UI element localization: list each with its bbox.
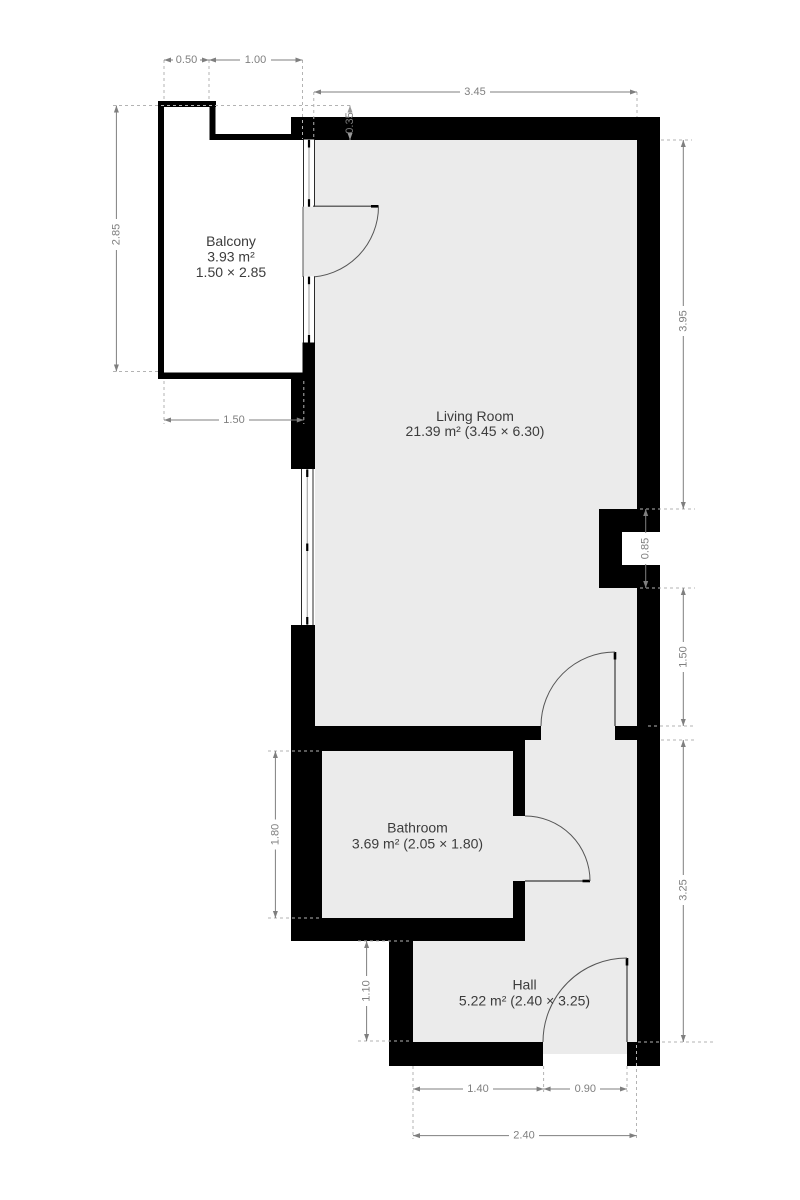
svg-text:2.40: 2.40 xyxy=(513,1130,534,1142)
svg-text:1.80: 1.80 xyxy=(269,824,281,845)
svg-text:1.50 × 2.85: 1.50 × 2.85 xyxy=(196,264,267,280)
svg-text:21.39 m² (3.45 × 6.30): 21.39 m² (3.45 × 6.30) xyxy=(406,423,545,439)
svg-text:3.69 m² (2.05 × 1.80): 3.69 m² (2.05 × 1.80) xyxy=(352,836,483,852)
svg-text:1.10: 1.10 xyxy=(361,980,373,1001)
svg-text:0.35: 0.35 xyxy=(344,112,356,133)
svg-text:3.93 m²: 3.93 m² xyxy=(207,249,255,265)
svg-text:0.90: 0.90 xyxy=(575,1083,596,1095)
svg-text:1.40: 1.40 xyxy=(467,1083,488,1095)
svg-text:2.85: 2.85 xyxy=(110,224,122,245)
svg-text:3.95: 3.95 xyxy=(677,310,689,331)
svg-text:1.50: 1.50 xyxy=(677,646,689,667)
svg-text:5.22 m² (2.40 × 3.25): 5.22 m² (2.40 × 3.25) xyxy=(459,993,590,1009)
svg-text:0.85: 0.85 xyxy=(640,538,652,559)
svg-text:Living Room: Living Room xyxy=(436,408,514,424)
svg-text:3.25: 3.25 xyxy=(677,879,689,900)
svg-text:Balcony: Balcony xyxy=(206,233,256,249)
svg-text:3.45: 3.45 xyxy=(464,86,485,98)
svg-text:1.50: 1.50 xyxy=(223,414,244,426)
svg-text:Hall: Hall xyxy=(512,977,536,993)
svg-text:0.50: 0.50 xyxy=(176,54,197,66)
svg-text:Bathroom: Bathroom xyxy=(387,820,448,836)
svg-text:1.00: 1.00 xyxy=(245,54,266,66)
